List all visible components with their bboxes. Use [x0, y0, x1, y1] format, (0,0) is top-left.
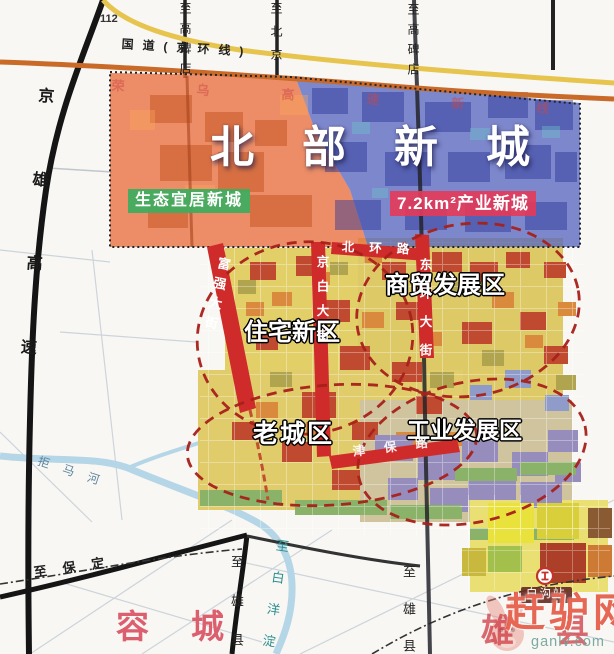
to-beijing-label: 至北京 [270, 2, 282, 71]
baigou-planning-map: 112 国道(京环线) 至高碑店 至北京 至高碑店 京雄高速 荣乌高速新线 北部… [0, 0, 614, 654]
railway-station-icon [537, 568, 553, 584]
to-gaobeidian-left-label: 至高碑店 [179, 2, 191, 82]
watermark-site-url: ganlv.com [531, 635, 605, 650]
route-112-label: 112 [100, 14, 118, 25]
to-gaobeidian-right-label: 至高碑店 [407, 3, 419, 83]
commerce-zone-label: 商贸发展区 [385, 274, 505, 298]
old-town-zone-label: 老城区 [253, 422, 334, 447]
watermark-site-name: 赶驴网 [505, 593, 614, 633]
donghuan-street-label: 东环大街 [418, 258, 431, 372]
north-new-city-title: 北部新城 [210, 126, 578, 170]
industry-city-badge: 7.2km²产业新城 [390, 191, 536, 216]
eco-city-badge: 生态宜居新城 [128, 189, 250, 213]
rongcheng-county-label: 容城 [116, 612, 266, 645]
to-xiongxian-east-label: 至雄县 [402, 565, 415, 654]
jingbai-street-label: 京白大街 [315, 255, 328, 353]
beihuan-road-label: 北环路 [342, 241, 425, 256]
